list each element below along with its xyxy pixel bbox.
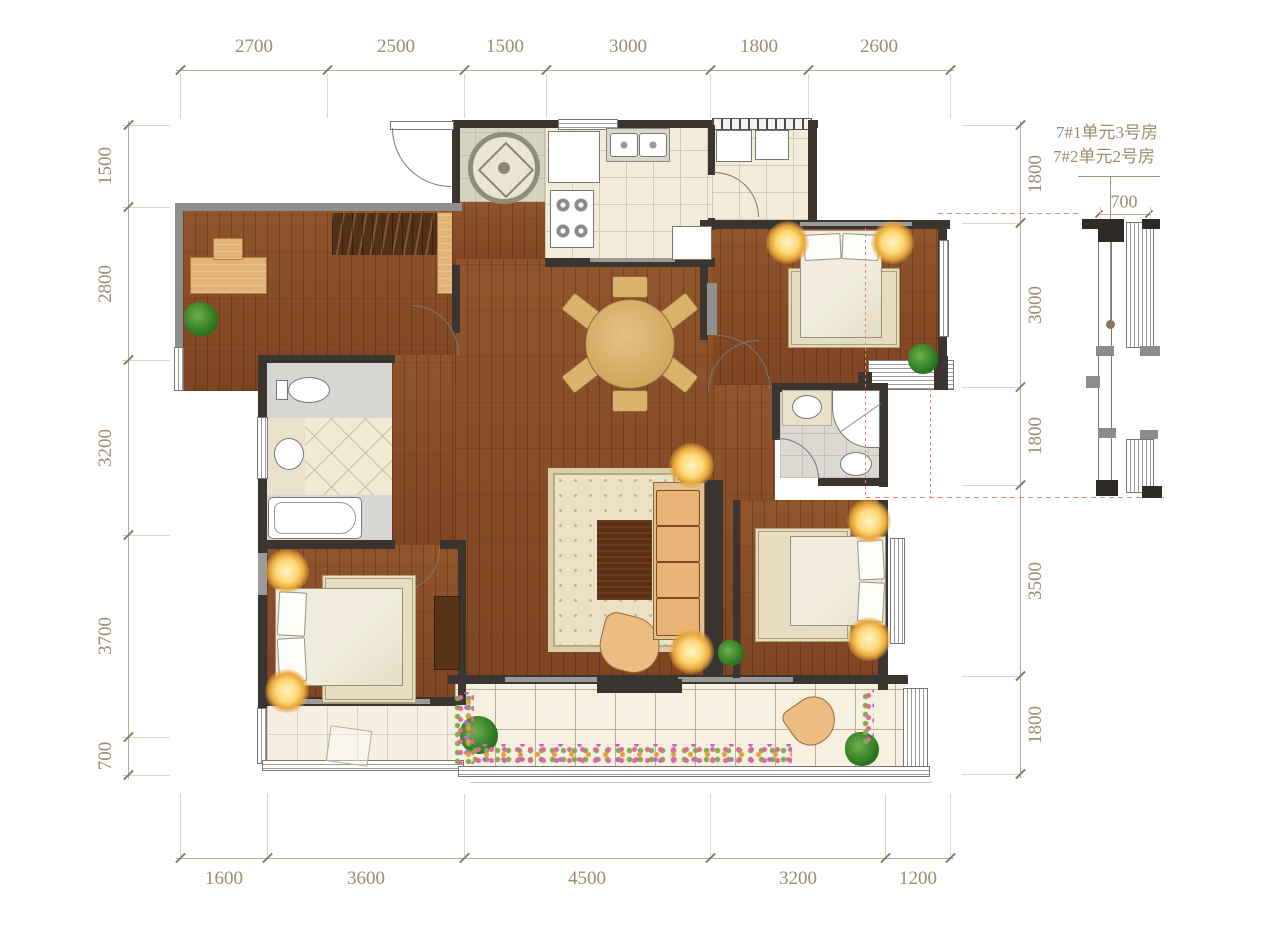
guide-line-vertical-2 — [930, 388, 931, 497]
dim-rail-bottom — [176, 858, 954, 859]
dim-top-2: 2500 — [377, 36, 415, 58]
study-window — [174, 347, 184, 391]
flowerbed-left — [454, 692, 474, 764]
lamp-glow — [265, 549, 309, 593]
inset-gray-tab — [1086, 376, 1100, 388]
inset-unit-label-2: 7#2单元2号房 — [1053, 142, 1155, 167]
lamp-glow — [847, 499, 891, 543]
flowerbed-right — [862, 690, 874, 746]
balcony-left-window-side — [257, 708, 267, 764]
sofa-cushion — [656, 490, 700, 526]
lamp-glow — [871, 221, 914, 264]
dim-tick — [1145, 210, 1153, 218]
toilet-right — [840, 452, 872, 476]
inset-gray-block — [1096, 346, 1114, 356]
dryer — [755, 130, 789, 160]
wall-bath-right-bottom — [818, 478, 888, 486]
guide-line-horizontal-top — [938, 213, 1082, 214]
ext-line — [962, 485, 1018, 486]
ext-line — [962, 223, 1018, 224]
wall-hall-divider — [452, 265, 460, 333]
wall-bath-right-right — [879, 383, 888, 487]
wall-bedroom-bl-top — [258, 540, 395, 549]
toilet-tank — [276, 380, 288, 400]
nightstand-lamp — [856, 508, 882, 534]
inset-gray-block — [1098, 428, 1116, 438]
dim-top-4: 3000 — [609, 36, 647, 58]
closet-cloakroom — [332, 213, 452, 255]
dim-top-1: 2700 — [235, 36, 273, 58]
ext-line — [180, 74, 181, 118]
toilet-left — [288, 377, 330, 403]
ext-line — [546, 74, 547, 118]
lamp-glow — [766, 221, 809, 264]
floor-plan-canvas: 2700 2500 1500 3000 1800 2600 1600 3600 … — [0, 0, 1265, 925]
inset-wall-cap — [1142, 219, 1160, 229]
terrace-slider-1 — [505, 677, 597, 682]
dim-top-6: 2600 — [860, 36, 898, 58]
inset-corridor — [1098, 242, 1112, 480]
dim-bottom-1: 1600 — [205, 868, 243, 890]
ext-line — [180, 794, 181, 856]
lamp-glow — [847, 617, 891, 661]
medallion-center — [498, 162, 510, 174]
dim-top-3: 1500 — [486, 36, 524, 58]
ext-line — [962, 125, 1018, 126]
dim-left-2: 2800 — [95, 265, 117, 303]
inset-leader-line — [1078, 176, 1160, 177]
ext-line — [710, 794, 711, 856]
nightstand-lamp — [775, 230, 800, 255]
shower-diagonal — [841, 403, 881, 431]
wall-kitchen-utility — [708, 125, 715, 175]
ext-line — [464, 74, 465, 118]
dim-left-1: 1500 — [95, 147, 117, 185]
dim-left-5: 700 — [95, 742, 117, 771]
dim-bottom-2: 3600 — [347, 868, 385, 890]
plant-living — [718, 640, 744, 666]
inset-wall-block — [1142, 486, 1162, 498]
inset-gray-block — [1140, 346, 1160, 356]
dim-bottom-3: 4500 — [568, 868, 606, 890]
wall-west — [258, 355, 267, 710]
dim-rail-left — [128, 121, 129, 779]
ext-line — [950, 74, 951, 118]
bath-left-sink — [274, 438, 304, 470]
ext-line — [962, 774, 1018, 775]
inset-wall-block — [1098, 228, 1124, 242]
inset-window-lower — [1126, 439, 1154, 493]
ext-line — [710, 74, 711, 118]
nightstand-lamp — [274, 558, 300, 584]
wall-study-top — [175, 203, 462, 211]
sofa-cushion — [656, 562, 700, 598]
guide-line-horizontal-bottom — [866, 497, 1164, 498]
inset-unit-label-1: 7#1单元3号房 — [1056, 118, 1158, 143]
dining-chair — [612, 276, 648, 298]
dining-chair — [612, 390, 648, 412]
bath-right-sink — [792, 395, 822, 419]
kitchen-cabinet — [548, 131, 600, 183]
dining-table — [585, 299, 675, 389]
bath-left-window — [257, 417, 268, 479]
wall-entry-left — [452, 120, 460, 208]
kitchen-sink — [606, 128, 670, 162]
entry-medallion — [468, 132, 540, 204]
pillow — [857, 539, 885, 580]
dim-right-4: 3500 — [1025, 562, 1047, 600]
guide-line-vertical-1 — [865, 228, 866, 497]
floor-lamp — [678, 638, 705, 666]
bedroom-br-window — [890, 538, 905, 644]
ext-line — [327, 74, 328, 118]
terrace-window-front — [458, 766, 930, 777]
bathtub-inner — [274, 502, 356, 534]
floor-lamp — [678, 452, 705, 480]
plant-bedroom-tr — [908, 344, 938, 374]
terrace-step-block — [597, 679, 682, 693]
ext-line — [267, 794, 268, 856]
washer — [716, 130, 752, 162]
dim-top-5: 1800 — [740, 36, 778, 58]
wall-dining-door — [707, 283, 717, 335]
dim-left-4: 3700 — [95, 617, 117, 655]
dim-left-3: 3200 — [95, 429, 117, 467]
lamp-glow — [669, 443, 714, 488]
wall-bath-left-top — [258, 355, 395, 363]
study-desk — [190, 257, 267, 294]
ext-line — [950, 794, 951, 856]
wall-utility-right — [808, 120, 817, 222]
inset-gray-cap — [1140, 430, 1158, 439]
kitchen-fridge — [672, 226, 712, 260]
sofa-cushion — [656, 526, 700, 562]
flowerbed-bottom — [472, 744, 792, 764]
inset-window-upper — [1126, 222, 1154, 348]
dim-right-2: 3000 — [1025, 286, 1047, 324]
sink-basin-left — [610, 133, 638, 157]
lamp-glow — [265, 669, 309, 713]
pillow — [803, 233, 841, 261]
inset-wall-block — [1096, 480, 1118, 496]
ext-line — [808, 74, 809, 118]
nightstand-lamp — [856, 626, 882, 652]
balcony-chair-sketch — [326, 725, 373, 766]
kitchen-door-lintel — [590, 258, 675, 262]
dim-right-5: 1800 — [1025, 706, 1047, 744]
dim-bottom-4: 3200 — [779, 868, 817, 890]
dim-right-1: 1800 — [1025, 155, 1047, 193]
utility-railing — [712, 118, 812, 130]
dim-bottom-5: 1200 — [899, 868, 937, 890]
nightstand-lamp — [880, 230, 905, 255]
study-desk-hutch — [213, 238, 243, 260]
dresser-bedroom-bl — [434, 596, 460, 670]
entry-door-arc — [392, 128, 451, 187]
plant-study — [184, 302, 218, 336]
terrace-outer-line — [470, 782, 932, 783]
dim-rail-top — [176, 70, 954, 71]
inset-dim-700: 700 — [1111, 192, 1138, 213]
bedroom-tr-window — [939, 240, 949, 337]
dim-right-3: 1800 — [1025, 417, 1047, 455]
floor-entry-hall — [452, 202, 545, 265]
floor-bath-left-tile — [305, 418, 392, 495]
floor-hall-west — [392, 355, 455, 547]
coffee-table — [597, 520, 652, 600]
ext-line — [962, 676, 1018, 677]
wall-bath-right-left — [772, 383, 780, 440]
inset-dim-line — [1100, 214, 1150, 215]
kitchen-stove — [550, 190, 594, 248]
lamp-glow — [669, 629, 714, 674]
terrace-window-right — [903, 688, 928, 770]
nightstand-lamp — [274, 678, 300, 704]
ext-line — [962, 387, 1018, 388]
ext-line — [464, 794, 465, 856]
sink-basin-right — [639, 133, 667, 157]
bathtub — [268, 497, 362, 539]
ext-line — [885, 794, 886, 856]
pillow — [277, 591, 307, 636]
